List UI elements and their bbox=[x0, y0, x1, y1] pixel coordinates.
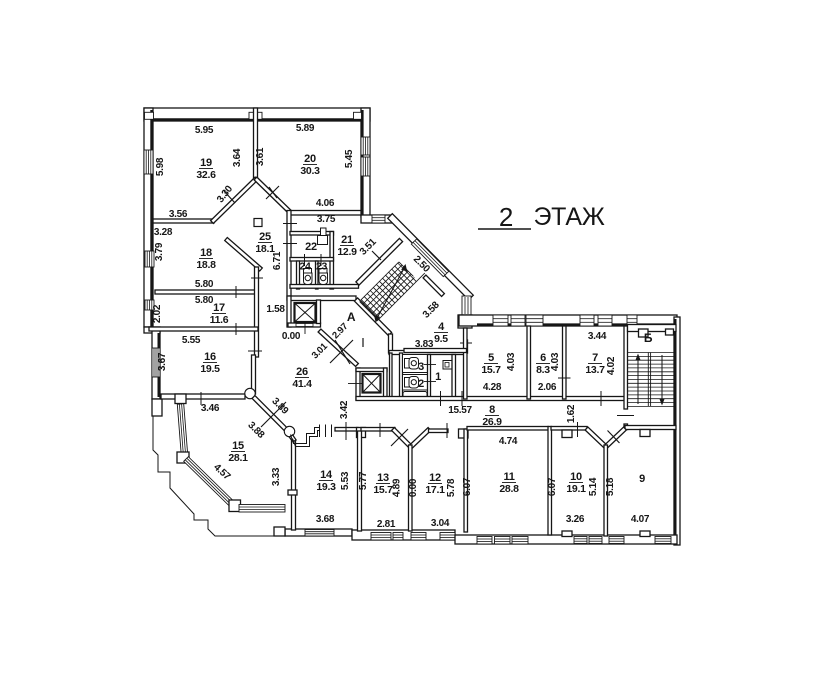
svg-text:19: 19 bbox=[200, 157, 212, 169]
svg-text:15.7: 15.7 bbox=[373, 484, 393, 496]
svg-text:3.83: 3.83 bbox=[415, 339, 434, 350]
svg-text:3.42: 3.42 bbox=[339, 400, 350, 419]
svg-text:24: 24 bbox=[299, 261, 311, 273]
svg-text:1.58: 1.58 bbox=[266, 304, 285, 315]
svg-text:5: 5 bbox=[488, 352, 494, 364]
svg-text:6.71: 6.71 bbox=[272, 251, 283, 270]
svg-text:6.07: 6.07 bbox=[462, 477, 473, 496]
svg-text:15.57: 15.57 bbox=[448, 405, 472, 416]
svg-text:23: 23 bbox=[316, 261, 328, 273]
svg-text:5.80: 5.80 bbox=[195, 279, 214, 290]
svg-text:19.3: 19.3 bbox=[316, 481, 336, 493]
svg-text:3.75: 3.75 bbox=[317, 214, 336, 225]
svg-text:4.03: 4.03 bbox=[506, 352, 517, 371]
svg-text:17: 17 bbox=[213, 302, 225, 314]
svg-text:5.14: 5.14 bbox=[588, 477, 599, 496]
svg-text:18: 18 bbox=[200, 247, 212, 259]
svg-text:22: 22 bbox=[305, 241, 317, 253]
svg-text:8.3: 8.3 bbox=[536, 364, 550, 376]
svg-text:26: 26 bbox=[296, 366, 308, 378]
svg-text:5.89: 5.89 bbox=[296, 123, 315, 134]
svg-text:28.1: 28.1 bbox=[228, 452, 248, 464]
svg-text:7: 7 bbox=[592, 352, 598, 364]
svg-text:28.8: 28.8 bbox=[499, 483, 519, 495]
svg-text:18.8: 18.8 bbox=[196, 259, 216, 271]
svg-text:2: 2 bbox=[418, 378, 424, 390]
svg-text:15.7: 15.7 bbox=[481, 364, 501, 376]
svg-text:4.06: 4.06 bbox=[316, 198, 335, 209]
svg-text:3.33: 3.33 bbox=[271, 467, 282, 486]
svg-text:5.98: 5.98 bbox=[155, 157, 166, 176]
svg-text:4.28: 4.28 bbox=[483, 382, 502, 393]
svg-text:11: 11 bbox=[503, 471, 514, 483]
svg-text:13.7: 13.7 bbox=[585, 364, 605, 376]
svg-text:12: 12 bbox=[429, 472, 441, 484]
svg-text:13: 13 bbox=[377, 472, 389, 484]
svg-text:3.28: 3.28 bbox=[154, 227, 173, 238]
svg-text:5.77: 5.77 bbox=[358, 471, 369, 490]
svg-text:5.45: 5.45 bbox=[344, 149, 355, 168]
svg-text:3.26: 3.26 bbox=[566, 514, 585, 525]
svg-text:5.78: 5.78 bbox=[446, 478, 457, 497]
svg-text:4.07: 4.07 bbox=[631, 514, 650, 525]
svg-text:19.1: 19.1 bbox=[566, 483, 586, 495]
svg-text:41.4: 41.4 bbox=[292, 378, 312, 390]
svg-text:10: 10 bbox=[570, 471, 582, 483]
svg-text:26.9: 26.9 bbox=[482, 416, 502, 428]
svg-text:6.07: 6.07 bbox=[547, 477, 558, 496]
svg-text:4.89: 4.89 bbox=[392, 478, 403, 497]
svg-text:25: 25 bbox=[259, 231, 271, 243]
svg-text:20: 20 bbox=[304, 153, 316, 165]
svg-text:3: 3 bbox=[418, 361, 424, 373]
svg-text:14: 14 bbox=[320, 469, 333, 481]
svg-text:12.9: 12.9 bbox=[337, 246, 357, 258]
svg-text:9: 9 bbox=[639, 473, 645, 485]
svg-text:1.62: 1.62 bbox=[566, 404, 577, 423]
svg-text:32.6: 32.6 bbox=[196, 169, 216, 181]
svg-text:0.00: 0.00 bbox=[282, 331, 301, 342]
svg-text:9.5: 9.5 bbox=[434, 333, 448, 345]
svg-text:2.81: 2.81 bbox=[377, 519, 396, 530]
svg-text:15: 15 bbox=[232, 440, 244, 452]
svg-text:0.00: 0.00 bbox=[408, 478, 419, 497]
svg-text:3.67: 3.67 bbox=[157, 352, 168, 371]
svg-text:5.18: 5.18 bbox=[605, 477, 616, 496]
svg-text:3.56: 3.56 bbox=[169, 209, 188, 220]
svg-text:8: 8 bbox=[489, 404, 495, 416]
svg-text:17.1: 17.1 bbox=[425, 484, 445, 496]
svg-text:5.95: 5.95 bbox=[195, 125, 214, 136]
svg-text:2.06: 2.06 bbox=[538, 382, 557, 393]
svg-text:4.03: 4.03 bbox=[550, 352, 561, 371]
svg-text:5.80: 5.80 bbox=[195, 295, 214, 306]
svg-text:21: 21 bbox=[341, 234, 353, 246]
svg-text:3.79: 3.79 bbox=[154, 242, 165, 261]
svg-text:3.44: 3.44 bbox=[588, 331, 607, 342]
svg-text:3.61: 3.61 bbox=[255, 147, 266, 166]
svg-text:1: 1 bbox=[435, 371, 441, 383]
svg-text:11.6: 11.6 bbox=[210, 314, 229, 326]
svg-text:4.02: 4.02 bbox=[606, 356, 617, 375]
svg-text:ЭТАЖ: ЭТАЖ bbox=[534, 203, 605, 231]
svg-text:2.02: 2.02 bbox=[152, 304, 163, 323]
svg-text:2: 2 bbox=[499, 202, 513, 232]
svg-text:6: 6 bbox=[540, 352, 546, 364]
svg-text:4.74: 4.74 bbox=[499, 436, 518, 447]
svg-text:3.04: 3.04 bbox=[431, 518, 450, 529]
svg-text:3.64: 3.64 bbox=[232, 148, 243, 167]
svg-text:30.3: 30.3 bbox=[300, 165, 320, 177]
svg-text:3.68: 3.68 bbox=[316, 514, 335, 525]
svg-text:Б: Б bbox=[644, 331, 653, 345]
svg-text:3.46: 3.46 bbox=[201, 403, 220, 414]
svg-text:19.5: 19.5 bbox=[200, 363, 220, 375]
svg-text:16: 16 bbox=[204, 351, 216, 363]
svg-text:5.55: 5.55 bbox=[182, 335, 201, 346]
svg-text:5.53: 5.53 bbox=[340, 471, 351, 490]
svg-text:А: А bbox=[347, 310, 356, 324]
